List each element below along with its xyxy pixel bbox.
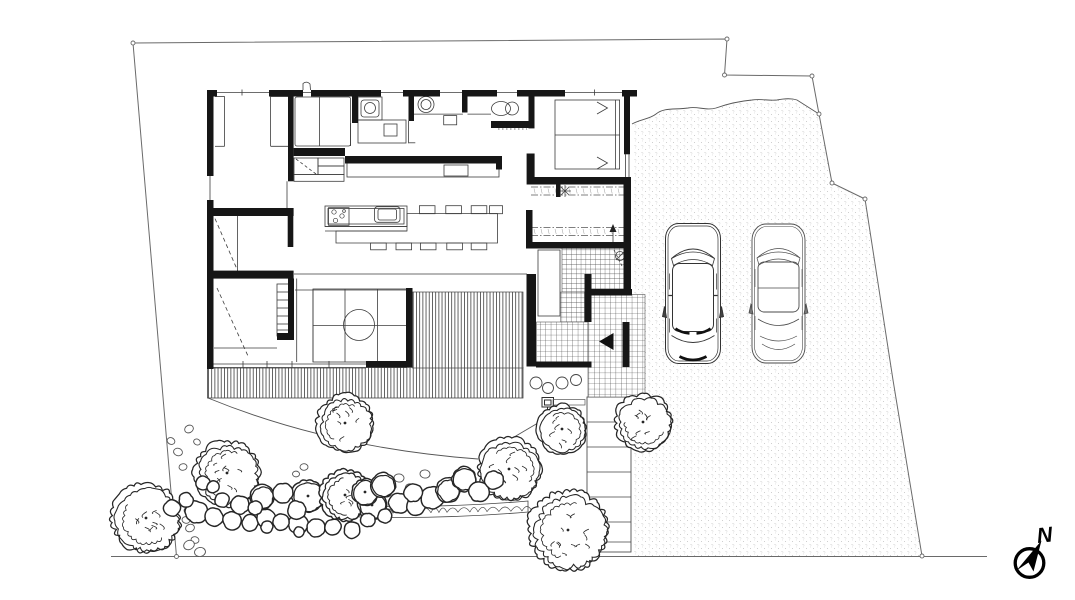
svg-text:N: N [1036,522,1054,548]
